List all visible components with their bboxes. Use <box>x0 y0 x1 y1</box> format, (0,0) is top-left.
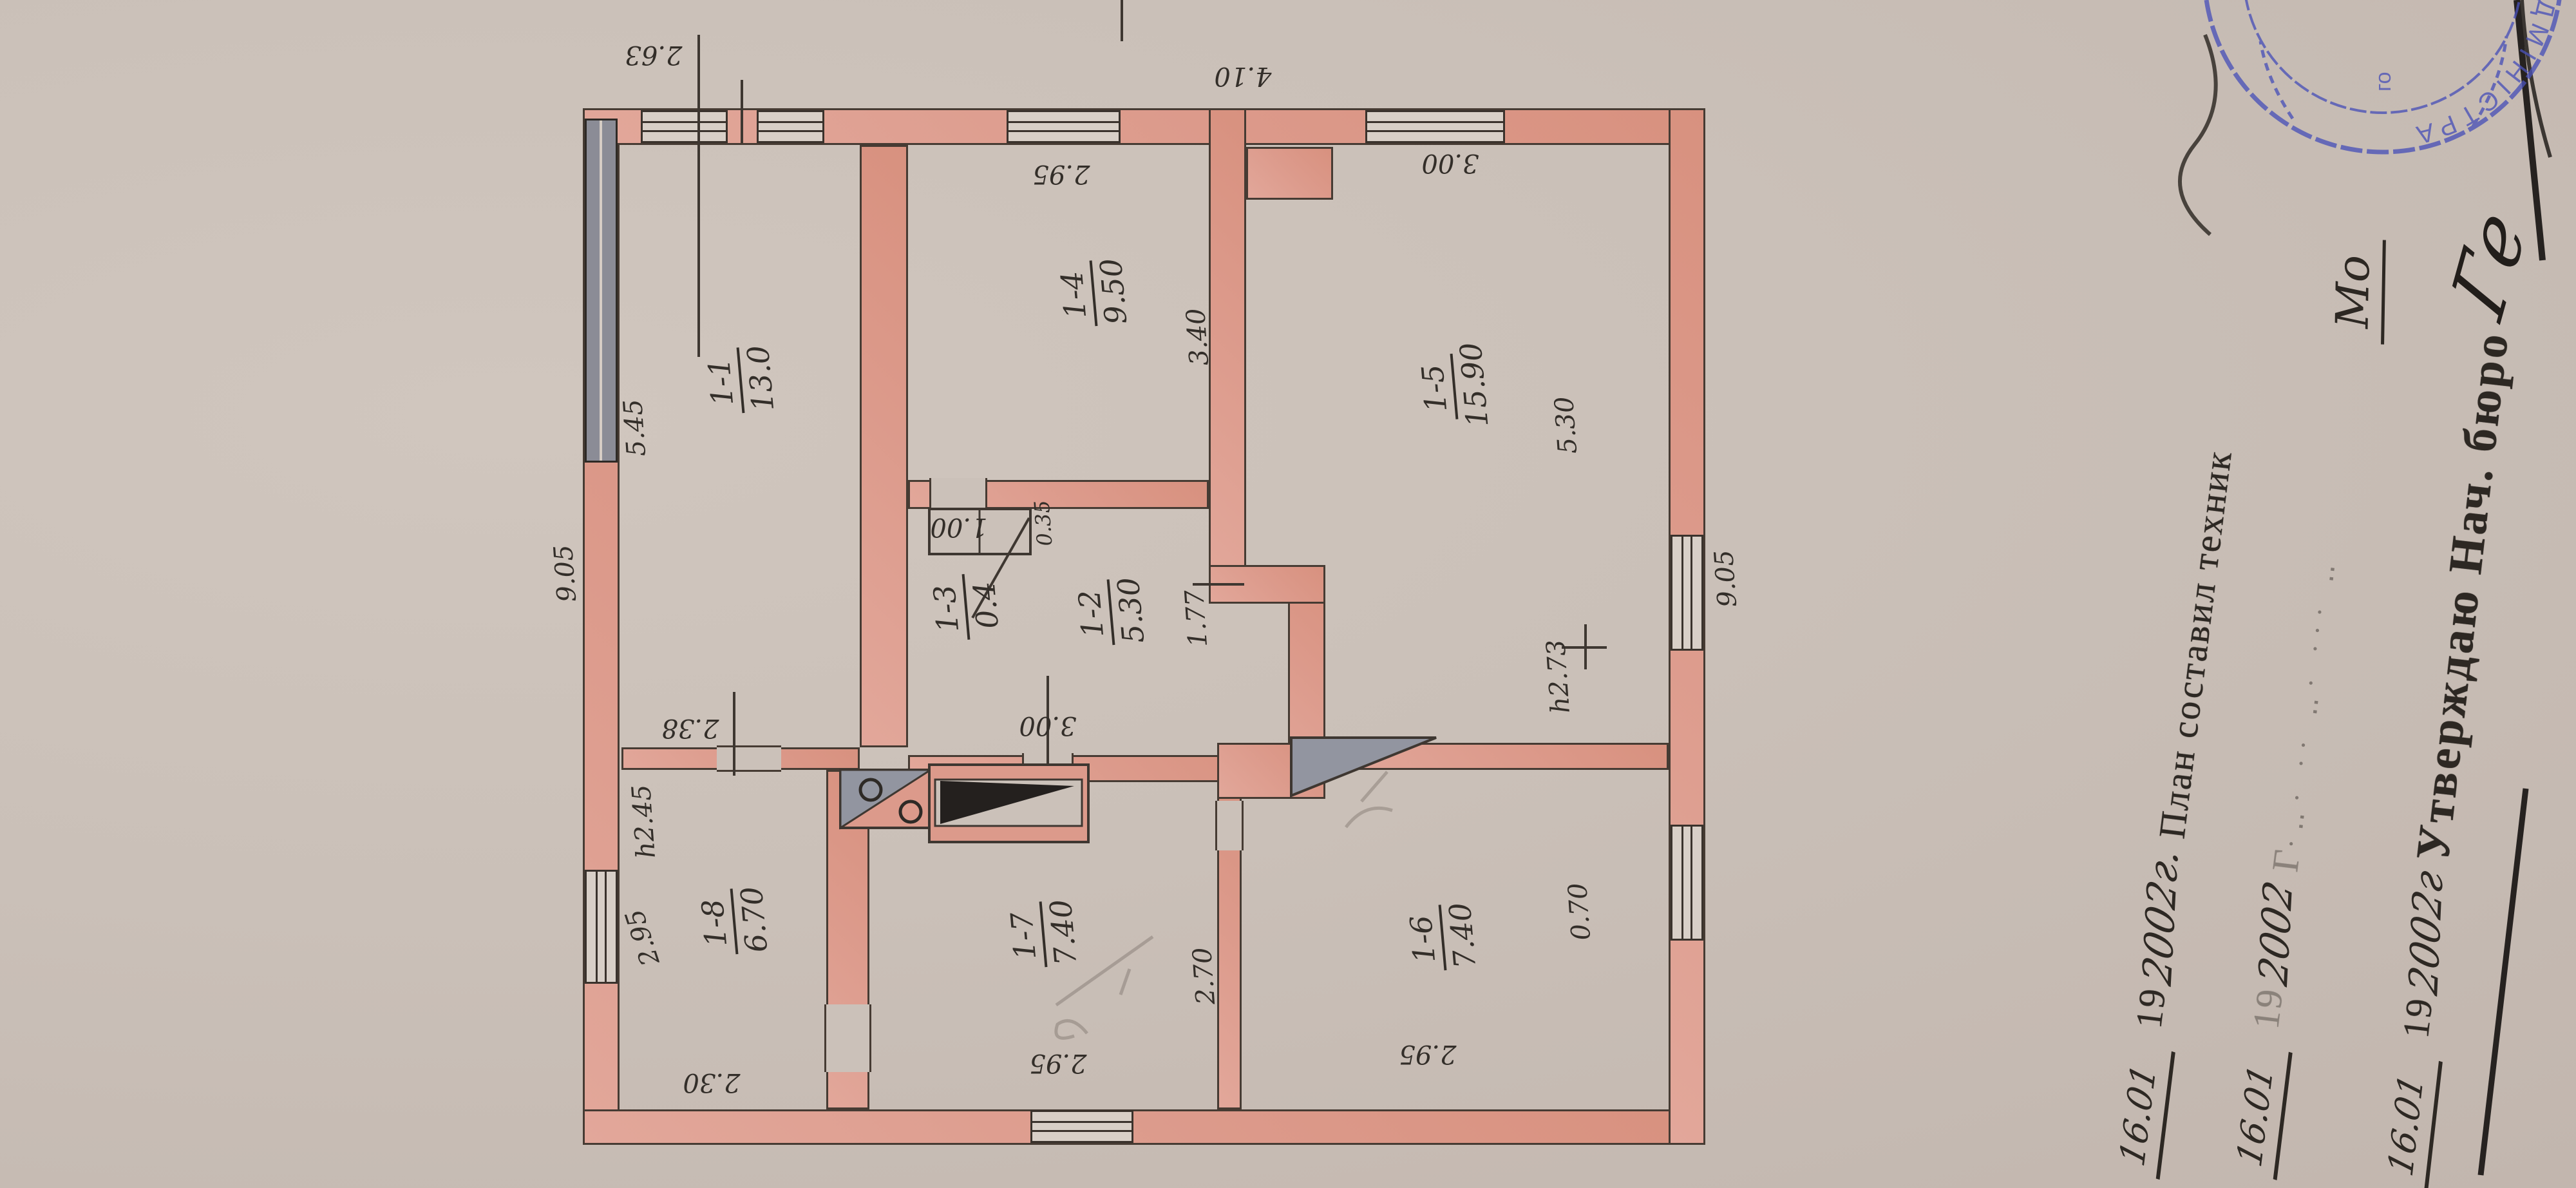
printed-year-prefix: 19 <box>2244 985 2291 1031</box>
room-id: 1-8 <box>694 888 739 957</box>
dim-room14-width: 3.40 <box>1181 307 1215 367</box>
scanned-floorplan-page: АДМІНІСТРА го 1-1 13.0 1-4 9.50 1-3 0.4 … <box>0 0 2576 1188</box>
room-label-1-3: 1-3 0.4 <box>926 571 1006 643</box>
svg-text:АДМІНІСТРА: АДМІНІСТРА <box>2408 0 2564 151</box>
room-id: 1-3 <box>926 574 971 643</box>
room-id: 1-7 <box>1003 901 1048 970</box>
dim-room11-width: 5.45 <box>618 398 652 457</box>
room-id: 1-2 <box>1071 579 1115 648</box>
dim-room15-height: h2.73 <box>1541 638 1576 714</box>
room-area: 9.50 <box>1092 257 1134 326</box>
dim-window-16: 0.70 <box>1563 882 1596 941</box>
room-label-1-7: 1-7 7.40 <box>1003 898 1083 970</box>
handwritten-year: 2002г. <box>2134 843 2187 990</box>
room-area: 7.40 <box>1441 901 1483 970</box>
dim-room18-depth: 2.30 <box>683 1068 740 1097</box>
porch-steps-symbol <box>1291 738 1436 796</box>
room-id: 1-6 <box>1403 905 1447 973</box>
handwritten-year: 2002г <box>2400 866 2452 1000</box>
stamp-inner-text: го <box>2371 72 2396 91</box>
room-label-1-8: 1-8 6.70 <box>694 885 774 957</box>
handwritten-year: 2002 <box>2250 876 2302 990</box>
stamp-arc-text: АДМІНІСТРА <box>2408 0 2564 151</box>
dim-room11-depth: 2.38 <box>661 713 719 743</box>
room-area: 13.0 <box>739 344 781 413</box>
stove-symbol <box>840 770 931 828</box>
room-area: 0.4 <box>965 571 1007 640</box>
room-label-1-2: 1-2 5.30 <box>1071 576 1151 648</box>
dim-closet-depth: 0.35 <box>1030 499 1057 547</box>
dim-room18-height: h2.45 <box>627 783 661 859</box>
room-id: 1-5 <box>1414 354 1459 423</box>
dim-room17-width: 2.70 <box>1188 946 1221 1006</box>
printed-year-prefix: 19 <box>2394 995 2441 1040</box>
dim-window-15: 3.00 <box>1421 148 1479 178</box>
portrait-document: АДМІНІСТРА го 1-1 13.0 1-4 9.50 1-3 0.4 … <box>0 0 2576 1188</box>
room-area: 5.30 <box>1110 576 1151 645</box>
handwritten-initials: Мо <box>2325 239 2386 344</box>
room-area: 6.70 <box>733 885 775 954</box>
dim-window-263: 2.63 <box>625 40 682 70</box>
room-label-1-5: 1-5 15.90 <box>1413 341 1495 432</box>
entrance-door-symbol <box>929 765 1088 842</box>
room-label-1-6: 1-6 7.40 <box>1403 901 1482 973</box>
room-id: 1-4 <box>1054 260 1098 329</box>
dim-segment-410: 4.10 <box>1214 61 1271 91</box>
dim-overall-top: 9.05 <box>549 544 582 603</box>
dim-segment-177: 1.77 <box>1180 589 1213 648</box>
room-label-1-4: 1-4 9.50 <box>1054 257 1133 329</box>
printed-year-prefix: 19 <box>2127 984 2173 1030</box>
room-label-1-1: 1-1 13.0 <box>701 344 781 416</box>
room-area: 15.90 <box>1452 341 1495 428</box>
dim-window-14: 2.95 <box>1032 159 1090 189</box>
dim-room16-depth: 2.95 <box>1399 1039 1456 1069</box>
dim-room15-width: 5.30 <box>1549 396 1583 455</box>
dim-door-300: 3.00 <box>1019 711 1076 740</box>
dim-room17-depth: 2.95 <box>1029 1048 1086 1078</box>
room-id: 1-1 <box>701 347 745 416</box>
stamp-seal: АДМІНІСТРА го <box>2204 0 2564 152</box>
dim-closet-width: 1.00 <box>930 512 987 542</box>
dim-overall-bottom: 9.05 <box>1709 549 1743 608</box>
room-area: 7.40 <box>1042 898 1084 967</box>
